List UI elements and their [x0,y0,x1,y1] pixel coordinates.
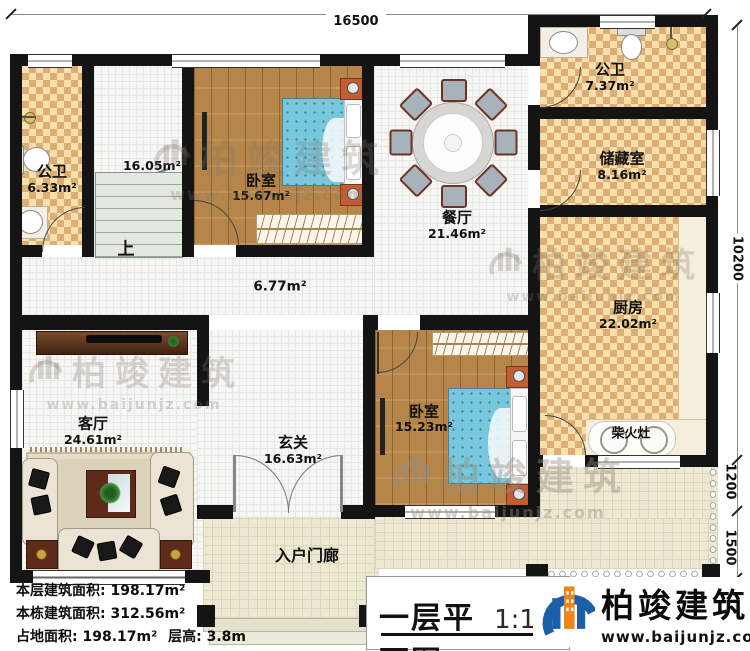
sofa-cushion [30,494,51,515]
height-label: 层高: [168,629,202,645]
bath2-toilet-bowl [621,34,642,60]
staircase [95,172,183,258]
foyer-area: 16.63m² [264,453,322,466]
bath1-label: 公卫 [37,165,67,180]
stairwell-area: 16.05m² [123,160,181,173]
storage-area: 8.16m² [597,169,646,182]
bed1-nightstand-knob [347,188,359,200]
area-stats: 本层建筑面积: 198.17m² 本栋建筑面积: 312.56m² 占地面积: … [16,580,246,649]
bed1-pillow [346,104,361,138]
bed1-nightstand-knob [347,82,359,94]
wall [420,315,528,330]
window [706,130,720,196]
window [28,54,72,68]
wall [10,245,42,257]
footprint-value: 198.17m² [82,629,157,645]
dimension-right-low: 1500 [723,523,738,573]
dining-chair [495,130,518,156]
bath1-area: 6.33m² [27,182,76,195]
sofa-cushion [97,541,118,562]
terrace-floor-low [375,517,718,569]
bath1-shower-knob [24,112,36,124]
kitchen-area: 22.02m² [599,318,657,331]
plan-title: 一层平面图 [379,593,484,651]
bath2-shower-knob [666,38,678,50]
wall [10,315,209,330]
wall [706,15,718,467]
dining-table-center [444,134,462,152]
bedroom2-wardrobe [432,332,530,356]
dining-area: 21.46m² [428,228,486,241]
end-table-knob [36,549,47,560]
living-label: 客厅 [78,417,108,432]
wall [540,205,706,217]
floor-area-value: 198.17m² [110,583,185,599]
dimension-right-mid: 1200 [723,457,738,507]
bed1-pillow [346,146,361,180]
porch-label: 入户门廊 [275,548,339,564]
living-area: 24.61m² [64,434,122,447]
entry-door-leaf-right [340,455,343,512]
title-underline [381,633,549,636]
terrace-railing-right [706,467,720,567]
window [706,293,720,353]
wall [341,505,375,519]
foyer-label: 玄关 [278,436,308,451]
bedroom2-door-leaf [377,332,379,374]
brand-website: www.baijunjz.com [601,628,750,646]
bedroom1-wardrobe [256,214,364,244]
wood-stove-label: 柴火灶 [611,428,650,441]
window [405,505,495,519]
brand-block: 柏竣建筑 www.baijunjz.com [533,577,750,647]
wall [363,315,378,330]
bedroom2-area: 15.23m² [395,421,453,434]
height-value: 3.8m [207,629,246,645]
building-area-value: 312.56m² [110,606,185,622]
wall [197,330,209,406]
wall [540,107,706,119]
bedroom1-label: 卧室 [246,174,276,189]
bedroom1-area: 15.67m² [232,190,290,203]
dining-chair [390,130,413,156]
bedroom2-tv [380,398,385,455]
wall [363,330,375,517]
bed2-pillow [512,440,527,476]
cabinet-plant [168,336,179,347]
dining-chair [441,185,467,208]
window [600,15,655,29]
floor-area-label: 本层建筑面积: [16,583,106,599]
storage-label: 储藏室 [599,152,644,167]
dining-label: 餐厅 [442,211,472,226]
bath2-label: 公卫 [595,63,625,78]
dimension-top-width: 16500 [326,14,386,29]
wall [528,455,543,467]
brand-name: 柏竣建筑 [601,579,750,627]
end-table-knob [170,549,181,560]
stats-line-building: 本栋建筑面积: 312.56m² [16,603,246,626]
window [598,455,680,469]
stairs-up-label: 上 [118,242,135,259]
window [172,54,320,68]
bedroom1-tv [202,112,207,170]
building-area-label: 本栋建筑面积: [16,606,106,622]
bedroom2-label: 卧室 [409,405,439,420]
bed2-nightstand-knob [513,370,525,382]
hall-floor [22,257,374,315]
bath2-sink-basin [549,31,578,54]
stats-line-floor: 本层建筑面积: 198.17m² [16,580,246,603]
bed2-nightstand-knob [513,488,525,500]
bath2-area: 7.37m² [585,80,634,93]
dimension-right-main: 10200 [730,234,745,284]
wall [528,330,540,517]
footprint-label: 占地面积: [16,629,78,645]
bed2-pillow [512,396,527,432]
wall [528,105,540,170]
hall-area: 6.77m² [253,280,306,294]
table-plant [99,482,121,504]
wall [236,245,374,257]
window [400,54,505,68]
brand-logo-icon [533,577,595,647]
kitchen-label: 厨房 [613,301,643,316]
wall [362,54,374,257]
wall [528,15,540,66]
tv-screen [86,335,162,343]
wall [528,208,540,330]
stats-line-footprint: 占地面积: 198.17m² 层高: 3.8m [16,626,246,649]
dining-chair [441,79,467,102]
wall [182,54,194,257]
wall [197,505,233,519]
floor-plan-canvas: 公卫 6.33m² 16.05m² 上 卧室 15.67m² 餐厅 21.46m… [0,0,750,651]
entry-door-leaf-left [233,455,236,512]
bath1-shower-line [22,116,36,118]
terrace-floor-up [540,467,718,519]
window [10,390,24,448]
